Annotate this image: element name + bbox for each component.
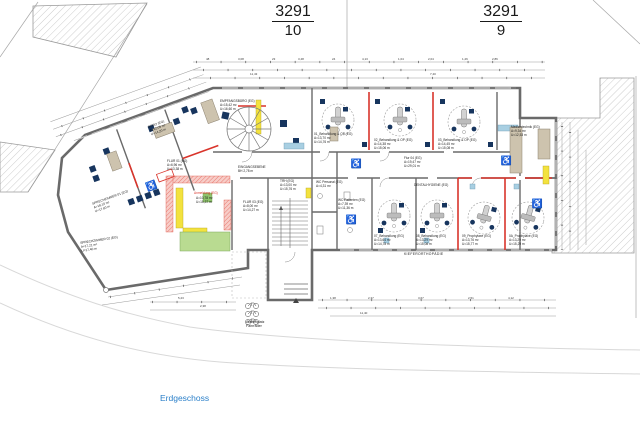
dim-value: 23 (272, 57, 275, 61)
dim-value: 11,43 (250, 72, 257, 76)
dim-value: 3,08 (238, 57, 244, 61)
room-label-prophylaxe0a: 0A_Prophylaxe (EG) A=13,29 m² U=15,29 m (509, 235, 538, 247)
room-label-behandlung03: 03_Behandlung & OP (EG) A=14,45 m² U=15,… (438, 139, 476, 151)
dim-value: 11,40 (360, 311, 367, 315)
dim-value: 2,38 (200, 304, 206, 308)
green-area (180, 232, 230, 251)
parcel-denominator: 9 (472, 23, 530, 38)
room-label-dentalhygiene: DENTALHYGIENE (EG) (414, 184, 448, 188)
room-label-behandlung01: 01_Behandlung & OP (EG) A=13,70 m² U=14,… (314, 133, 352, 145)
dim-value: 2,04 (428, 57, 434, 61)
room-label-flur04: Flur 04 (EG) A=19,47 m² U=29,01 m (404, 157, 422, 169)
room-label-trh: TRH (EG) A=13,00 m² U=15,76 m (280, 180, 297, 192)
room-label-prophylaxe09: 09_Prophylaxe (EG) A=13,76 m² U=15,77 m (462, 235, 491, 247)
dim-value: 3,48 (298, 57, 304, 61)
parcel-numerator: 3291 (272, 4, 314, 22)
parcel-label-3291-10: 3291 10 (264, 4, 322, 38)
dim-value: 4,13 (362, 57, 368, 61)
room-label-flur03: FLUR 03 (EG) A=8,00 m² U=14,27 m (243, 201, 263, 213)
dim-value: 48 (206, 57, 209, 61)
room-label-wc-personal: WC Personal (EG) A=4,31 m² (316, 181, 342, 189)
room-label-empfangsbuero: EMPFANGSBÜRO (EG) A=15,42 m² U=16,60 m (220, 100, 255, 112)
label-anmeldung-red: Anmeldung (EG) (194, 192, 218, 196)
dim-value: 2,51 (468, 296, 474, 300)
site-plan-page: ♿ (0, 0, 640, 427)
dim-value: 7,40 (430, 72, 436, 76)
floor-title-erdgeschoss: Erdgeschoss (160, 393, 209, 403)
parcel-numerator: 3291 (480, 4, 522, 22)
dim-value: 3,67 (418, 296, 424, 300)
room-label-medizintechnik: Medizintechnik (EG) A=9,34 m² U=12,53 m (511, 126, 540, 138)
dim-value: 1,04 (398, 57, 404, 61)
dim-value: 4,12 (508, 296, 514, 300)
room-label-wc-patienten: WC Patienten (EG) A=7,39 m² U=11,36 m (338, 199, 365, 211)
dim-value: 2,86 (492, 57, 498, 61)
room-label-behandlung08: 08_Behandlung (EG) A=13,29 m² U=15,08 m (416, 235, 446, 247)
label-abstellplatz-fahrraeder: Abstellplatz Fahrräder (246, 320, 264, 329)
dim-value: 1,38 (330, 296, 336, 300)
room-label-anmeldung-area: A=10,78 m² U=15,37 m (196, 197, 213, 205)
room-label-behandlung07: 07_Behandlung (EG) A=13,64 m² U=14,78 m (374, 235, 404, 247)
dim-value: 5,23 (178, 296, 184, 300)
room-label-flur01: FLUR 01 (EG) A=6,96 m² U=13,38 m (167, 160, 187, 172)
label-eingangsebene: EINGANGSEBENE BH 2,78 m (238, 166, 266, 174)
dim-value: 2,37 (368, 296, 374, 300)
street-edge-curves (0, 265, 640, 374)
dim-value: 1,26 (462, 57, 468, 61)
parcel-denominator: 10 (264, 23, 322, 38)
dim-value: 24 (332, 57, 335, 61)
label-kieferorthopaedie: KIEFERORTHOPÄDIE (404, 252, 443, 256)
room-label-behandlung02: 02_Behandlung & OP (EG) A=14,38 m² U=15,… (374, 139, 412, 151)
parcel-label-3291-9: 3291 9 (472, 4, 530, 38)
corner-survey-point (104, 288, 109, 293)
